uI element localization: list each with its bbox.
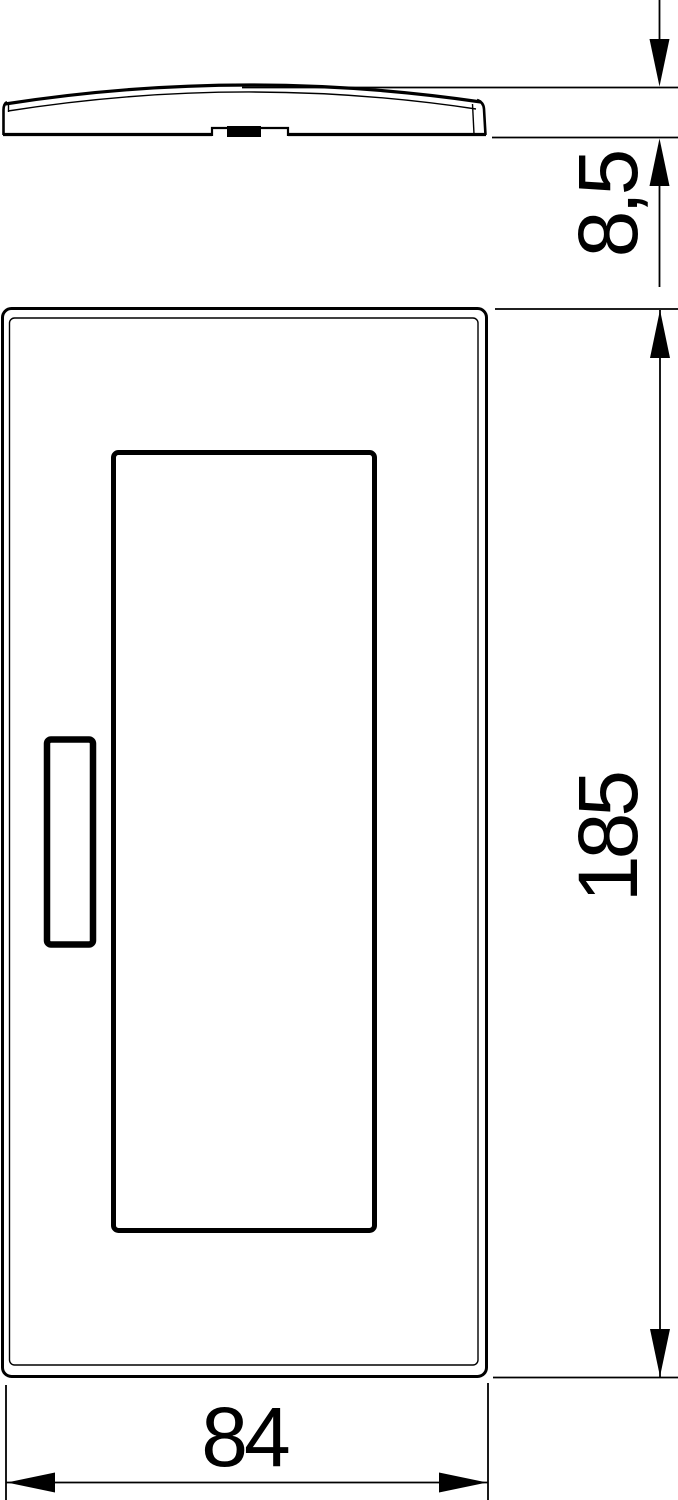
profile-left-edge (4, 102, 8, 135)
front-view (3, 309, 487, 1377)
dim-label-width: 84 (201, 1395, 286, 1479)
side-profile-view (3, 85, 486, 137)
front-view-inner-edge-line (10, 318, 479, 1365)
profile-mounting-tab (227, 126, 261, 137)
arrow-up-icon (650, 310, 670, 358)
dim-label-thickness: 8,5 (566, 153, 650, 258)
arrow-right-icon (439, 1473, 487, 1493)
technical-drawing-page: 8,5 185 84 (0, 0, 678, 1500)
arrow-down-icon (650, 39, 670, 87)
front-view-outline (3, 309, 487, 1377)
cutout-rectangle (114, 453, 375, 1231)
arrow-left-icon (7, 1473, 55, 1493)
profile-right-edge (477, 100, 486, 135)
label-slot (47, 740, 93, 945)
dim-label-length: 185 (566, 774, 650, 902)
arrow-down-icon (650, 1329, 670, 1377)
